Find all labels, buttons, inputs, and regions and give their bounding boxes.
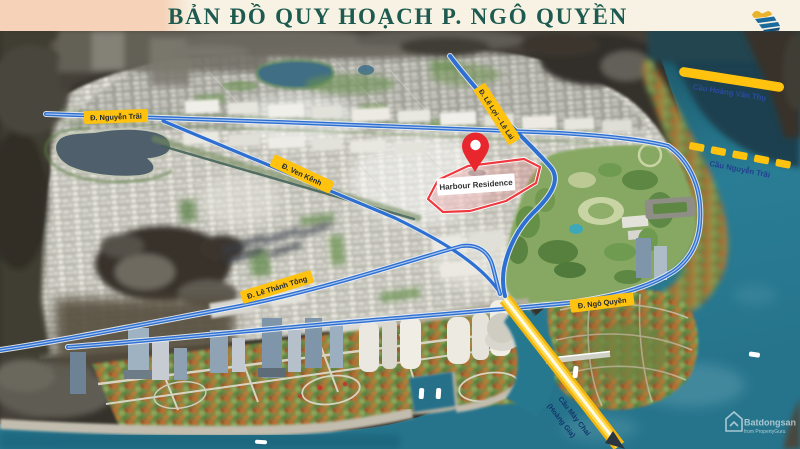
svg-text:Batdongsan: Batdongsan [744, 418, 796, 428]
svg-text:from PropertyGuru: from PropertyGuru [744, 429, 786, 435]
svg-text:BẢN ĐỒ QUY HOẠCH P. NGÔ QUYỀN: BẢN ĐỒ QUY HOẠCH P. NGÔ QUYỀN [168, 3, 628, 29]
svg-text:Đ. Nguyễn Trãi: Đ. Nguyễn Trãi [90, 112, 142, 123]
